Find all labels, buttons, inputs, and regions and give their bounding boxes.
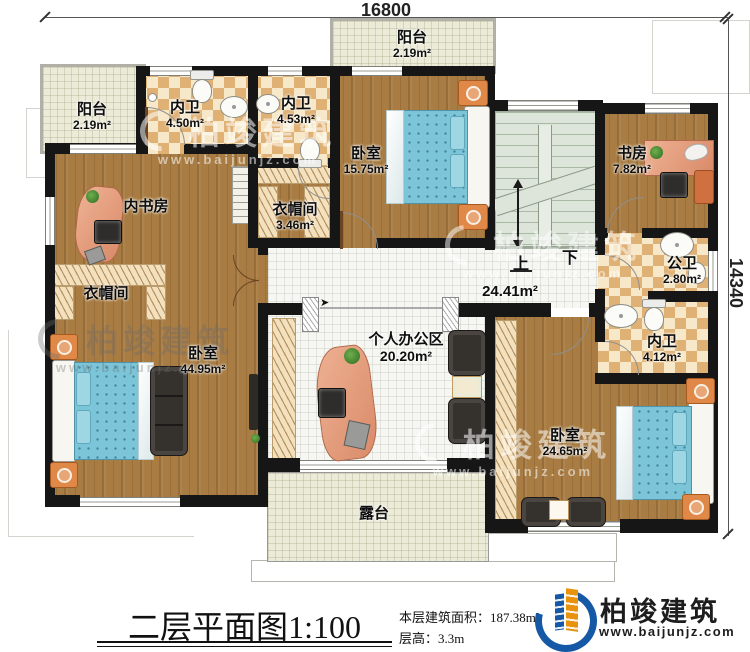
stairs-up-underline [510,270,532,272]
pillow [450,154,465,188]
computer-monitor [318,388,346,418]
eave-outline [652,20,750,94]
closet-left-rack [54,264,166,286]
armchair [566,497,606,527]
balcony-door [70,144,136,154]
bench [150,366,188,456]
window [150,66,192,76]
room-label-bath-b: 内卫4.53m² [277,96,315,126]
floor-plan: ➤ [0,0,750,652]
cabinet [694,170,714,204]
wall [330,238,340,248]
pillow [450,116,465,150]
balcony-door [352,66,402,76]
nightstand [682,494,710,520]
room-label-terrace: 露台 [359,506,389,523]
nightstand [458,80,488,106]
room-label-hall: 24.41m² [482,284,538,301]
window [508,100,578,111]
window [645,103,690,114]
door-leaf [340,211,343,249]
window [268,66,302,76]
wall [180,495,268,507]
company-logo-url: www.baijunjz.com [599,624,735,639]
room-label-bedroom-top: 卧室15.75m² [344,146,389,176]
window [708,251,718,291]
watermark-swoosh-icon [437,217,493,273]
plant [650,146,663,159]
office-wardrobe [272,318,296,462]
doorway-symbol [442,297,459,332]
terrace-step [251,560,615,582]
open-boundary [320,307,444,309]
watermark-swoosh-icon [407,415,463,471]
wall [258,303,268,505]
wall [485,303,495,533]
eave-outline [8,536,194,537]
room-label-closet-left: 衣帽间 [83,286,128,303]
nightstand [686,378,715,404]
room-label-balcony-top: 阳台2.19m² [393,30,431,60]
wall [620,519,718,533]
side-table [549,500,569,520]
stair-arrow-up [513,179,523,188]
room-label-inner-study: 内书房 [123,199,168,216]
dimension-top: 16800 [336,0,436,21]
logo-building-blue [555,593,564,630]
terrace-step [487,533,617,562]
dimension-right: 14340 [725,258,746,328]
title-underline [97,641,392,643]
plant [251,434,260,443]
room-label-bedroom-right: 卧室24.65m² [543,428,588,458]
eave-outline [8,330,9,536]
swing-arrow-icon: ➤ [320,296,329,309]
wall [458,303,551,317]
faucet [148,93,157,102]
pillow [672,412,687,446]
watermark-swoosh-icon [30,311,86,367]
wall [258,458,300,472]
room-label-study: 书房7.82m² [613,146,651,176]
wall [258,240,268,255]
watermark: 柏竣建筑 www.baijunjz.com [445,222,641,281]
computer-monitor [660,172,688,198]
room-label-bedroom-left: 卧室44.95m² [181,346,226,376]
tv-console [249,374,258,430]
wall [45,143,55,197]
bed-sheet [616,406,633,500]
toilet [644,307,664,331]
computer-monitor [94,220,122,244]
logo-building-orange [566,588,578,632]
pillow [76,372,91,406]
closet-left-rack [54,286,74,320]
wall [258,303,306,315]
window [80,497,180,507]
side-table [452,376,482,398]
pillow [76,410,91,444]
floor-height-text: 层高：3.3m [399,628,464,647]
bed-headboard [52,360,76,462]
room-label-office: 个人办公区20.20m² [368,332,443,364]
room-label-closet-small: 衣帽间3.46m² [272,202,317,232]
pillow [672,450,687,484]
wall [45,495,80,507]
floor-area-text: 本层建筑面积：187.38m² [399,607,540,626]
window [45,197,55,245]
company-logo-icon [533,584,595,644]
room-label-bath-a: 内卫4.50m² [166,100,204,130]
room-label-bath-public: 公卫2.80m² [663,256,701,286]
bed-sheet [386,110,404,204]
sink [604,304,638,328]
nightstand [50,462,78,488]
plant [344,348,360,364]
armchair [448,330,486,376]
stairs-down-label: 下 [562,244,578,268]
room-label-balcony-left: 阳台2.19m² [73,102,111,132]
plant [86,190,99,203]
closet-left-rack [146,286,166,320]
doorway-symbol [302,297,319,332]
title-underline [97,646,392,647]
room-label-bath-c: 内卫4.12m² [643,334,681,364]
